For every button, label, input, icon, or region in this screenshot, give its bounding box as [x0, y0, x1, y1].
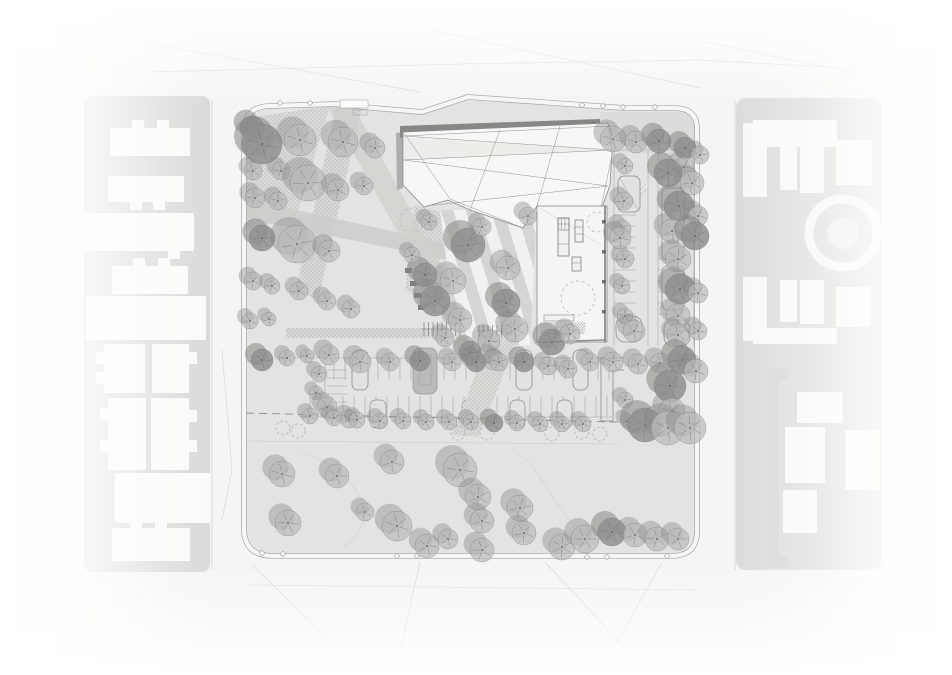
tree-center-dot	[459, 469, 461, 471]
site-plan-drawing	[0, 0, 952, 675]
tree-center-dot	[307, 182, 309, 184]
tree-center-dot	[671, 230, 673, 232]
tree-center-dot	[621, 285, 623, 287]
tree-center-dot	[689, 427, 691, 429]
tree-center-dot	[359, 361, 361, 363]
tree-center-dot	[411, 254, 413, 256]
tree-center-dot	[467, 244, 469, 246]
tree-center-dot	[551, 341, 553, 343]
courtyard	[537, 206, 607, 342]
tree-center-dot	[299, 139, 301, 141]
tree-center-dot	[252, 280, 254, 282]
tree-center-dot	[337, 189, 339, 191]
tree-center-dot	[425, 421, 427, 423]
tree-center-dot	[481, 520, 483, 522]
column	[602, 280, 606, 284]
tree-center-dot	[475, 361, 477, 363]
tree-center-dot	[428, 221, 430, 223]
furniture	[575, 220, 583, 242]
tree-center-dot	[254, 197, 256, 199]
tree-center-dot	[611, 531, 613, 533]
tree-center-dot	[286, 357, 288, 359]
tree-center-dot	[619, 237, 621, 239]
furniture	[558, 218, 569, 256]
tree-center-dot	[623, 200, 625, 202]
tree-center-dot	[328, 250, 330, 252]
tree-center-dot	[364, 511, 366, 513]
tree-center-dot	[669, 385, 671, 387]
tree-center-dot	[277, 200, 279, 202]
tree-center-dot	[306, 355, 308, 357]
tree-center-dot	[424, 274, 426, 276]
tree-center-dot	[677, 334, 679, 336]
tree-center-dot	[667, 172, 669, 174]
tree-center-dot	[333, 417, 335, 419]
tree-center-dot	[505, 302, 507, 304]
tree-center-dot	[507, 267, 509, 269]
tree-center-dot	[488, 340, 490, 342]
planting-strip	[286, 328, 430, 338]
tree-center-dot	[699, 154, 701, 156]
tree-center-dot	[389, 361, 391, 363]
tree-center-dot	[561, 546, 563, 548]
tree-center-dot	[261, 359, 263, 361]
tree-center-dot	[624, 399, 626, 401]
tree-center-dot	[624, 165, 626, 167]
tree-center-dot	[336, 475, 338, 477]
tree-center-dot	[634, 534, 636, 536]
tree-center-dot	[582, 423, 584, 425]
tree-center-dot	[318, 373, 320, 375]
tree-center-dot	[309, 415, 311, 417]
tree-center-dot	[637, 363, 639, 365]
tree-center-dot	[261, 237, 263, 239]
tree-center-dot	[635, 141, 637, 143]
tree-center-dot	[656, 538, 658, 540]
tree-center-dot	[658, 140, 660, 142]
tree-center-dot	[459, 319, 461, 321]
tree-center-dot	[271, 285, 273, 287]
tree-center-dot	[523, 532, 525, 534]
tree-center-dot	[452, 280, 454, 282]
contour-line	[222, 350, 232, 520]
tree-center-dot	[249, 320, 251, 322]
tree-center-dot	[547, 365, 549, 367]
tree-center-dot	[612, 138, 614, 140]
tree-center-dot	[633, 330, 635, 332]
tree-center-dot	[684, 147, 686, 149]
tree-center-dot	[679, 288, 681, 290]
tree-center-dot	[481, 549, 483, 551]
tree-center-dot	[697, 292, 699, 294]
tree-center-dot	[519, 507, 521, 509]
tree-center-dot	[561, 423, 563, 425]
tree-center-dot	[326, 300, 328, 302]
fade-bottom	[0, 566, 952, 675]
tree-center-dot	[379, 420, 381, 422]
tree-center-dot	[350, 308, 352, 310]
tree-center-dot	[677, 538, 679, 540]
tree-center-dot	[567, 368, 569, 370]
tree-center-dot	[451, 361, 453, 363]
tree-center-dot	[694, 235, 696, 237]
site-plan-stage	[0, 0, 952, 675]
tree-center-dot	[402, 420, 404, 422]
tree-center-dot	[419, 360, 421, 362]
tree-center-dot	[374, 147, 376, 149]
tree-center-dot	[363, 185, 365, 187]
tree-center-dot	[426, 545, 428, 547]
tree-center-dot	[523, 361, 525, 363]
tree-center-dot	[584, 538, 586, 540]
tree-center-dot	[539, 423, 541, 425]
tree-center-dot	[612, 361, 614, 363]
tree-center-dot	[391, 461, 393, 463]
tree-center-dot	[287, 522, 289, 524]
tree-center-dot	[298, 290, 300, 292]
tree-center-dot	[356, 419, 358, 421]
column	[602, 250, 606, 254]
tree-center-dot	[677, 258, 679, 260]
tree-center-dot	[697, 215, 699, 217]
tree-center-dot	[695, 370, 697, 372]
tree-center-dot	[342, 141, 344, 143]
tree-center-dot	[396, 525, 398, 527]
column	[602, 220, 606, 224]
fade-top	[0, 0, 952, 102]
tree-center-dot	[569, 333, 571, 335]
tree-center-dot	[481, 226, 483, 228]
tree-center-dot	[328, 354, 330, 356]
tree-center-dot	[624, 258, 626, 260]
tree-center-dot	[697, 330, 699, 332]
render-root	[0, 0, 952, 675]
tree-center-dot	[589, 361, 591, 363]
tree-center-dot	[493, 422, 495, 424]
tree-center-dot	[514, 328, 516, 330]
tree-center-dot	[477, 496, 479, 498]
tree-center-dot	[444, 337, 446, 339]
tree-center-dot	[281, 473, 283, 475]
tree-center-dot	[252, 170, 254, 172]
column	[602, 310, 606, 314]
tree-center-dot	[280, 170, 282, 172]
furniture	[572, 257, 581, 271]
tree-center-dot	[516, 422, 518, 424]
tree-center-dot	[498, 361, 500, 363]
tree-center-dot	[261, 143, 263, 145]
tree-center-dot	[677, 315, 679, 317]
tree-center-dot	[448, 421, 450, 423]
tree-center-dot	[678, 205, 680, 207]
tree-center-dot	[447, 538, 449, 540]
tree-center-dot	[527, 215, 529, 217]
tree-center-dot	[470, 421, 472, 423]
tree-center-dot	[691, 182, 693, 184]
tree-center-dot	[268, 318, 270, 320]
tree-center-dot	[434, 300, 436, 302]
roof-shadow	[396, 132, 403, 190]
tree-center-dot	[296, 243, 298, 245]
